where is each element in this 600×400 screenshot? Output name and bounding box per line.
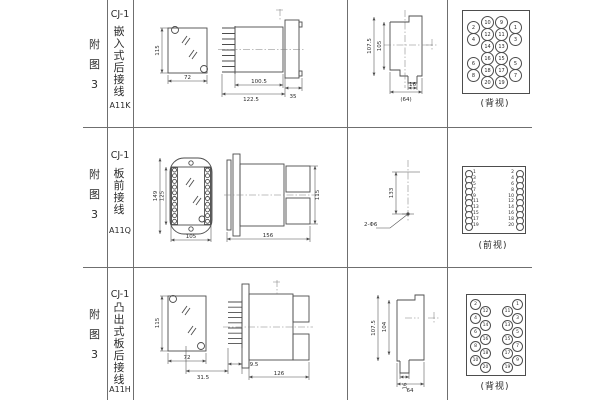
- terminal-circle: 10: [470, 355, 481, 366]
- terminal-circle: 20: [480, 362, 491, 373]
- view-label: (背视): [466, 379, 524, 392]
- terminal-circle: 4: [470, 313, 481, 324]
- a11q-drill-view: 133 2-Φ6: [362, 156, 444, 238]
- terminal-circle: 18: [480, 348, 491, 359]
- terminal-circle: 9: [512, 355, 523, 366]
- grid-line: [83, 127, 532, 128]
- terminal-circle: 17: [502, 348, 513, 359]
- dim-label: 64: [407, 388, 414, 394]
- dim-label: 115: [315, 189, 321, 200]
- dim-label: 35: [290, 94, 297, 100]
- hatch-mark: [193, 196, 201, 205]
- dim-label: 149: [153, 190, 159, 201]
- hatch-mark: [186, 178, 194, 187]
- dim-label: 31.5: [197, 375, 210, 381]
- view-label: (背视): [462, 96, 528, 109]
- view-label: (前视): [462, 238, 524, 251]
- model-label: CJ-1: [104, 9, 136, 20]
- a11k-front-view: 115 72: [138, 16, 213, 101]
- grid-line: [133, 0, 134, 400]
- dim-label: 126: [274, 371, 285, 377]
- dim-label: 107.5: [371, 320, 377, 336]
- type-code: A11K: [104, 101, 136, 110]
- terminal-circle: 3: [512, 313, 523, 324]
- hatch-mark: [182, 36, 190, 45]
- grid-line: [83, 267, 532, 268]
- grid-line: [447, 0, 448, 400]
- mount-type-label: 嵌入式后接线: [112, 26, 126, 98]
- hatch-mark: [189, 50, 197, 59]
- figure-label: 附图3: [87, 165, 102, 225]
- terminal-block-rear-a11h: 2 4 6 8 10 12 14 16 18 20 11 13 15 17 19…: [466, 294, 526, 376]
- figure-label: 附图3: [87, 305, 102, 365]
- dim-label: 115: [155, 45, 161, 56]
- grid-line: [107, 0, 108, 400]
- a11k-side-view: 100.5 122.5 35: [213, 8, 308, 100]
- terminal-circle: 8: [470, 341, 481, 352]
- terminal-number: 20: [499, 223, 514, 229]
- dim-label: 133: [389, 187, 395, 198]
- terminal-circle: 2: [470, 299, 481, 310]
- terminal-circle: 11: [502, 306, 513, 317]
- mount-type-label: 凸出式板后接线: [112, 302, 126, 386]
- terminal-number: 19: [473, 223, 487, 229]
- grid-line: [347, 0, 348, 400]
- a11q-front-view: 149 125 105: [155, 152, 227, 244]
- terminal-circle: 6: [470, 327, 481, 338]
- dim-label: 104: [382, 321, 388, 332]
- terminal-circle: 3: [509, 33, 522, 46]
- terminal-circle: 14: [480, 320, 491, 331]
- drawing-sheet: 附图3 CJ-1 嵌入式后接线 A11K 115 72 100.5 122.5 …: [0, 0, 600, 400]
- model-label: CJ-1: [104, 150, 136, 161]
- dim-label: (64): [400, 97, 411, 103]
- terminal-circle: 7: [509, 69, 522, 82]
- terminal-circle: 19: [495, 76, 508, 89]
- dim-label: 115: [155, 317, 161, 328]
- dim-label: 105: [377, 40, 383, 51]
- terminal-circle: 19: [502, 362, 513, 373]
- type-code: A11Q: [104, 226, 136, 235]
- fins: [222, 26, 235, 74]
- dim-label: 100.5: [251, 79, 267, 85]
- terminal-circle: 8: [467, 69, 480, 82]
- fins: [228, 300, 242, 348]
- terminal-circle: 20: [481, 76, 494, 89]
- a11q-side-view: 156 115: [224, 152, 322, 244]
- dim-label: 107.5: [367, 38, 373, 54]
- terminal-circle: 5: [512, 327, 523, 338]
- terminal-block-rear-a11k: 2 10 9 1 4 12 11 3 14 13 6 16 15 5 8 18 …: [462, 10, 530, 94]
- terminal-circle: 15: [502, 334, 513, 345]
- terminal-circle: 13: [502, 320, 513, 331]
- dim-label: 9.5: [250, 362, 259, 368]
- dim-label: 156: [263, 233, 274, 239]
- type-code: A11H: [104, 385, 136, 394]
- terminal-circle: 7: [512, 341, 523, 352]
- terminal-circle: 12: [480, 306, 491, 317]
- model-label: CJ-1: [104, 289, 136, 300]
- dim-label: 16: [409, 82, 416, 88]
- terminal-circle: 16: [480, 334, 491, 345]
- hole-callout: 2-Φ6: [364, 222, 378, 228]
- a11h-cutout-view: 107.5 104 16 64: [362, 285, 446, 393]
- dim-label: 122.5: [243, 97, 259, 103]
- a11h-side-view: 31.5 9.5 126: [185, 280, 315, 382]
- figure-label: 附图3: [87, 35, 102, 95]
- mount-type-label: 板前接线: [112, 168, 126, 216]
- terminal-strip-holes: [173, 168, 210, 223]
- dim-label: 72: [184, 75, 191, 81]
- a11k-cutout-view: 107.5 105 16 (64): [362, 8, 446, 106]
- dim-label: 105: [186, 234, 197, 240]
- terminal-circle: 1: [512, 299, 523, 310]
- terminal-circle: 4: [467, 33, 480, 46]
- dim-label: 125: [160, 190, 166, 201]
- terminal-block-front-a11q: 12 34 56 78 910 1112 1314 1516 1718 1920: [462, 166, 526, 234]
